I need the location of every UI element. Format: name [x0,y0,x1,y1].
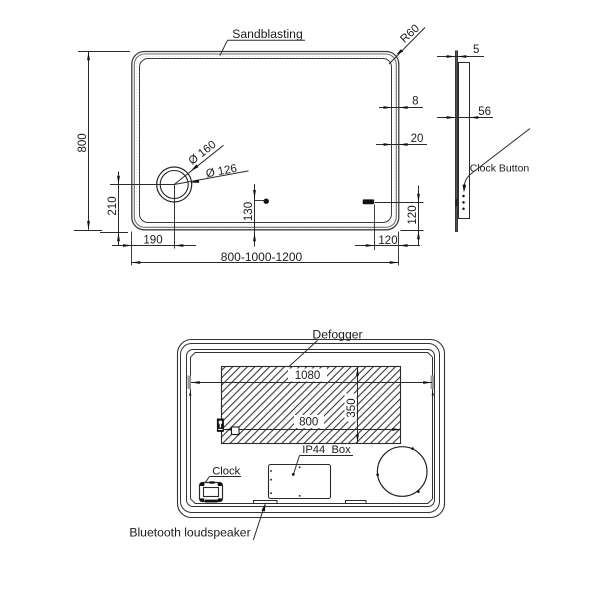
svg-text:800: 800 [77,133,89,152]
svg-text:210: 210 [107,196,119,215]
svg-text:5: 5 [473,44,479,56]
svg-text:Sandblasting: Sandblasting [232,27,302,41]
svg-text:56: 56 [478,106,491,118]
svg-text:Ø 126: Ø 126 [205,163,238,181]
svg-text:800: 800 [299,417,318,429]
svg-text:Bluetooth loudspeaker: Bluetooth loudspeaker [129,525,250,539]
svg-text:350: 350 [346,398,358,417]
svg-text:800-1000-1200: 800-1000-1200 [221,250,303,264]
svg-text:20: 20 [411,133,424,145]
svg-text:1080: 1080 [295,370,321,382]
svg-text:IP44 Box: IP44 Box [302,444,351,456]
svg-text:120: 120 [378,235,397,247]
svg-text:190: 190 [143,235,162,247]
svg-text:120: 120 [407,205,419,224]
svg-text:Defogger: Defogger [312,327,362,341]
svg-text:Clock Button: Clock Button [470,163,530,175]
svg-text:130: 130 [243,202,255,221]
svg-text:8: 8 [412,96,418,108]
svg-text:Clock: Clock [212,465,240,477]
